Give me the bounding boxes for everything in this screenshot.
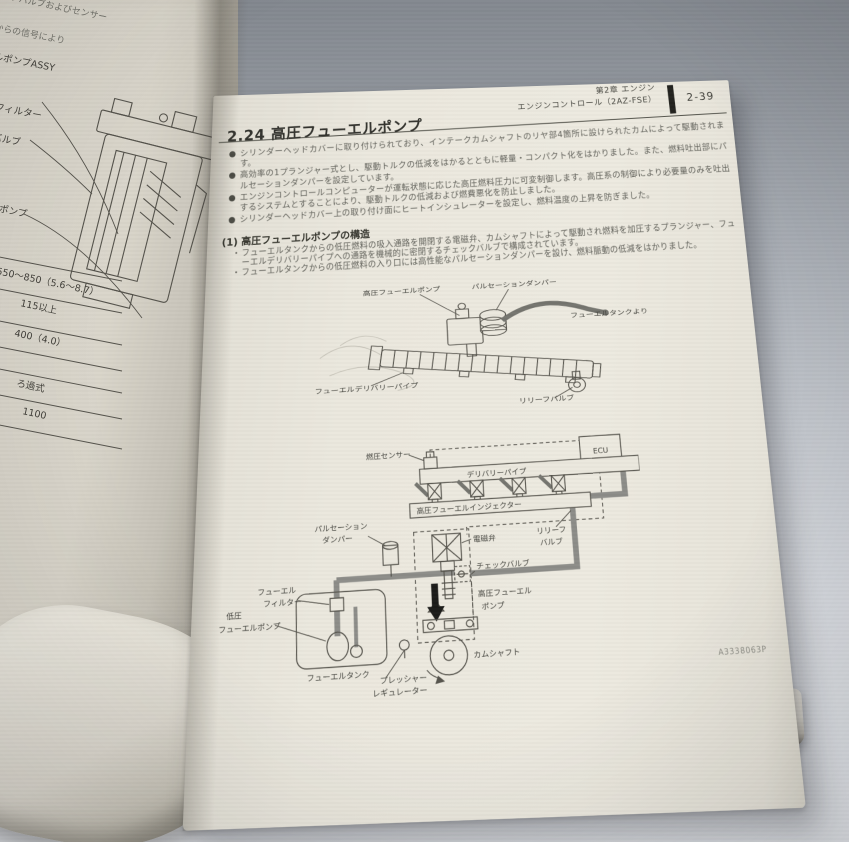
delivery-pipe-box xyxy=(420,455,640,484)
left-text-fragment-1: トオフバルブおよびセンサー xyxy=(0,0,108,23)
sub-bullet-glyph: ・ xyxy=(232,248,240,258)
leader-line xyxy=(30,140,92,194)
label-relief-valve-l2: バルブ xyxy=(540,535,564,547)
label-lp-pump-l1: 低圧 xyxy=(226,610,242,622)
manual-photo: トオフバルブおよびセンサー からの信号により フューエルポンプASSY エルフィ… xyxy=(0,0,849,842)
figure-code: A3338063P xyxy=(718,644,768,658)
leader-line xyxy=(495,289,510,310)
delivery-pipe-drawing xyxy=(368,346,601,384)
leader-line xyxy=(420,292,460,318)
camshaft-arrow-head xyxy=(435,675,445,684)
label-relief-valve-l1: リリーフ xyxy=(536,525,567,537)
table-value: 1100 xyxy=(21,406,47,422)
lp-supply-pipe xyxy=(336,572,469,581)
leader-line xyxy=(298,599,329,607)
label-fuel-delivery-pipe: フューエルデリバリーパイプ xyxy=(315,380,419,396)
bullet-glyph: ● xyxy=(228,193,236,204)
plunger-drawing xyxy=(426,561,456,612)
drive-arrow-shaft xyxy=(431,583,439,607)
label-solenoid-valve: 電磁弁 xyxy=(473,532,497,544)
label-pulsation-damper-l1: パルセーション xyxy=(314,521,367,534)
camshaft-center xyxy=(444,650,454,661)
left-text-fragment-2: からの信号により xyxy=(0,21,66,46)
pressure-regulator xyxy=(399,640,409,651)
left-spec-table: 550〜850（5.6〜8.7） 115以上 400（4.0） ろ過式 1100 xyxy=(0,254,122,449)
sensor-wire-dashed xyxy=(430,440,580,457)
table-value: 400（4.0） xyxy=(13,327,67,350)
figure-fuel-system-schematic: ECU デリバリーパイプ 燃圧センサー 高圧フューエルインジェクター xyxy=(196,428,661,712)
label-relief-valve: リリーフバルブ xyxy=(519,393,576,406)
leader-line xyxy=(275,622,326,645)
hp-pump-drawing xyxy=(446,301,508,358)
left-label-filter: エルフィルター xyxy=(0,98,43,121)
cam-follower xyxy=(423,617,478,633)
label-pressure-sensor: 燃圧センサー xyxy=(366,449,411,462)
left-label-valve: バルブ xyxy=(0,131,22,148)
label-lp-pump-l2: フューエルポンプ xyxy=(218,621,281,635)
label-hp-pump-l1: 高圧フューエル xyxy=(478,584,533,599)
table-value: 550〜850（5.6〜8.7） xyxy=(0,265,100,298)
label-fuel-tank: フューエルタンク xyxy=(307,668,370,684)
fuel-filter xyxy=(330,598,344,612)
right-page: 第2章 エンジン エンジンコントロール（2AZ-FSE） 2-39 2.24 高… xyxy=(183,80,806,831)
bullet-glyph: ● xyxy=(228,215,236,226)
page-number: 2-39 xyxy=(686,90,715,103)
solenoid-valve xyxy=(432,533,462,562)
label-ecu: ECU xyxy=(593,446,609,456)
label-hp-fuel-pump: 高圧フューエルポンプ xyxy=(363,284,441,297)
leader-line xyxy=(409,454,424,461)
label-pulsation-damper: パルセーションダンパー xyxy=(471,277,557,291)
label-pulsation-damper-l2: ダンパー xyxy=(322,533,353,546)
pulsation-damper-component xyxy=(382,541,398,577)
label-hp-pump-l2: ポンプ xyxy=(481,600,505,612)
label-camshaft: カムシャフト xyxy=(473,647,520,660)
figure-pictorial-fuel-rail: 高圧フューエルポンプ パルセーションダンパー フューエルタンクより フューエルデ… xyxy=(311,266,663,434)
tank-return-pipe xyxy=(355,607,356,647)
bullet-glyph: ● xyxy=(229,149,236,160)
left-label-pump-assy: フューエルポンプASSY xyxy=(0,44,56,74)
page-header: 第2章 エンジン エンジンコントロール（2AZ-FSE） xyxy=(516,82,657,114)
left-label-pump: エルポンプ xyxy=(0,200,28,220)
table-value: 115以上 xyxy=(19,298,58,317)
header-divider-bar xyxy=(667,85,676,114)
right-page-content: 第2章 エンジン エンジンコントロール（2AZ-FSE） 2-39 2.24 高… xyxy=(203,74,825,841)
label-regulator-l1: プレッシャー xyxy=(380,673,428,687)
label-filter-l1: フューエル xyxy=(257,585,296,597)
leader-line xyxy=(42,102,118,234)
structure-bullets: ・ フューエルタンクからの低圧燃料の吸入通路を開閉する電磁弁、カムシャフトによっ… xyxy=(232,218,738,278)
pressure-sensor xyxy=(424,457,438,469)
sub-bullet-glyph: ・ xyxy=(232,268,241,278)
background-sketch-line xyxy=(340,335,387,346)
bullet-glyph: ● xyxy=(229,171,236,182)
table-value: ろ過式 xyxy=(15,377,46,395)
